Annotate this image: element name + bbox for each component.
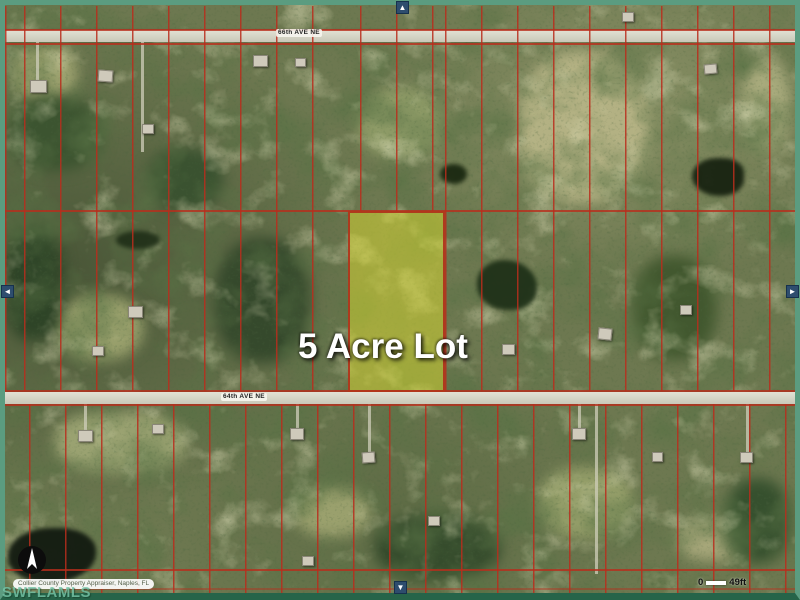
building [295,58,306,67]
parcel-lines-upper-middle [348,6,445,211]
road-label-64th-ave: 64th AVE NE [221,393,267,401]
building [128,306,143,318]
road-label-66th-ave: 66th AVE NE [276,29,322,37]
parcel-line-horizontal [60,588,795,590]
parcel-lines-lower [5,404,795,594]
building [704,63,718,74]
building [152,424,164,434]
building [30,80,47,93]
scale-bar: 0 49ft [698,577,746,588]
parcel-lines-upper-right [445,6,795,391]
pan-right-button[interactable]: ► [786,285,799,298]
scale-start-label: 0 [698,577,703,588]
lot-size-label: 5 Acre Lot [298,327,468,367]
building [572,428,586,440]
parcel-line-horizontal [5,43,795,45]
scale-line [706,581,726,585]
compass-north-icon [15,543,49,577]
building [142,124,154,134]
building [302,556,314,566]
building [362,452,376,464]
scale-end-label: 49ft [729,577,746,588]
building [428,516,440,526]
pan-down-button[interactable]: ▼ [394,581,407,594]
parcel-line-horizontal [5,404,795,406]
map-viewport[interactable]: 66th AVE NE 64th AVE NE 5 Acre Lot Colli… [0,0,800,600]
building [253,55,268,67]
road-64th-ave [5,392,795,404]
mls-watermark: SWFLAMLS [2,584,91,600]
building [98,69,114,82]
parcel-line-horizontal [5,569,795,571]
building [652,452,663,462]
building [740,452,753,463]
building [680,305,692,315]
building [502,344,515,355]
parcel-line-horizontal [5,29,795,31]
building [290,428,304,440]
pan-up-button[interactable]: ▲ [396,1,409,14]
building [622,12,634,22]
building [597,327,612,340]
pan-left-button[interactable]: ◄ [1,285,14,298]
building [92,346,104,356]
building [78,430,93,442]
